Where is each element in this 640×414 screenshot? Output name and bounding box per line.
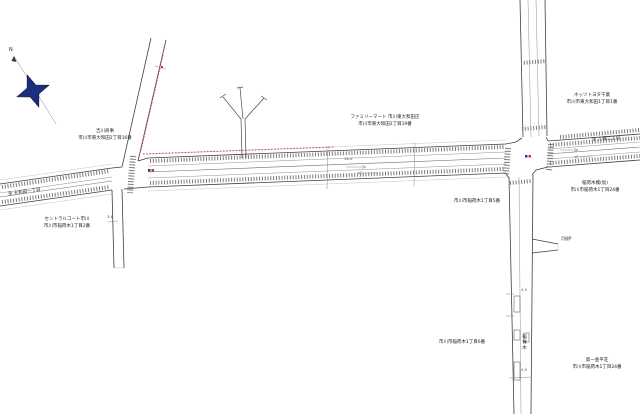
main-road-east — [548, 130, 640, 167]
main-road-middle — [143, 140, 506, 191]
width-tick: 4.5 — [521, 367, 527, 372]
annotation-block5: 市川市稲荷木1丁目5番 — [454, 199, 500, 206]
building-address: 市川市東大和田2丁目19番 — [351, 122, 420, 129]
building-address: 市川市稲荷木1丁目24番 — [572, 365, 621, 372]
crosswalk-hatch — [521, 61, 546, 63]
road-register-map[interactable]: N 吉川商事 市川市東大和田2丁目16番 ファミリーマート 市川東大和田店 市川… — [0, 0, 640, 414]
building-name: セントラルコート市川 — [44, 217, 90, 224]
crosswalk-hatch — [522, 127, 546, 129]
lane-arrow-west-icon — [358, 171, 378, 174]
compass-rose-icon — [12, 56, 57, 124]
side-street-southwest — [108, 189, 124, 268]
cross-road-north — [520, 0, 547, 137]
annotation-court: セントラルコート市川 市川市稲荷木1丁目2番 — [44, 217, 90, 230]
building-address: 市川市稲荷木1丁目24番 — [570, 188, 619, 195]
diagonal-road — [122, 38, 166, 167]
building-name: ネッツトヨタ千葉 — [567, 93, 618, 100]
building-address: 市川市東大和田2丁目16番 — [78, 136, 132, 143]
crosswalk-hatch — [130, 156, 133, 193]
utility-pole-icon — [220, 87, 267, 158]
annotation-building-left: 吉川商事 市川市東大和田2丁目16番 — [78, 129, 132, 142]
north-label: N — [9, 47, 13, 53]
annotation-daiichi: 第一金平荘 市川市稲荷木1丁目24番 — [572, 358, 621, 371]
map-linework — [0, 0, 640, 414]
crosswalk-hatch — [506, 148, 508, 176]
annotation-netz-toyota: ネッツトヨタ千葉 市川市東大和田1丁目1番 — [567, 93, 618, 106]
crosswalk-hatch — [510, 181, 532, 183]
cross-road-south — [506, 175, 558, 414]
annotation-inarigi-bridge: 稲荷木橋(仮) 市川市稲荷木1丁目24番 — [570, 181, 619, 194]
width-tick: 16.0 — [344, 156, 352, 161]
survey-point-icon — [161, 66, 163, 68]
road-name-vertical-label: 稲荷木 — [520, 334, 527, 351]
building-name: ファミリーマート 市川東大和田店 — [351, 115, 420, 122]
building-address: 市川市東大和田1丁目1番 — [567, 100, 618, 107]
width-tick: 4.5 — [521, 287, 527, 292]
lane-arrow-east-icon — [346, 165, 366, 168]
intersection-west — [112, 156, 154, 193]
traffic-signal-icon — [525, 155, 531, 158]
traffic-signal-icon — [148, 169, 154, 172]
building-address: 市川市稲荷木1丁目2番 — [44, 224, 90, 231]
parking-label: 月極P — [561, 236, 571, 242]
annotation-familymart: ファミリーマート 市川東大和田店 市川市東大和田2丁目19番 — [351, 115, 420, 128]
annotation-block6: 市川市稲荷木1丁目6番 — [439, 340, 485, 347]
width-tick: 3.6 — [107, 214, 113, 219]
lane-arrow-east-icon — [560, 148, 578, 151]
intersection-east — [506, 137, 551, 178]
crosswalk-hatch — [549, 144, 551, 171]
main-road-west — [0, 164, 112, 210]
